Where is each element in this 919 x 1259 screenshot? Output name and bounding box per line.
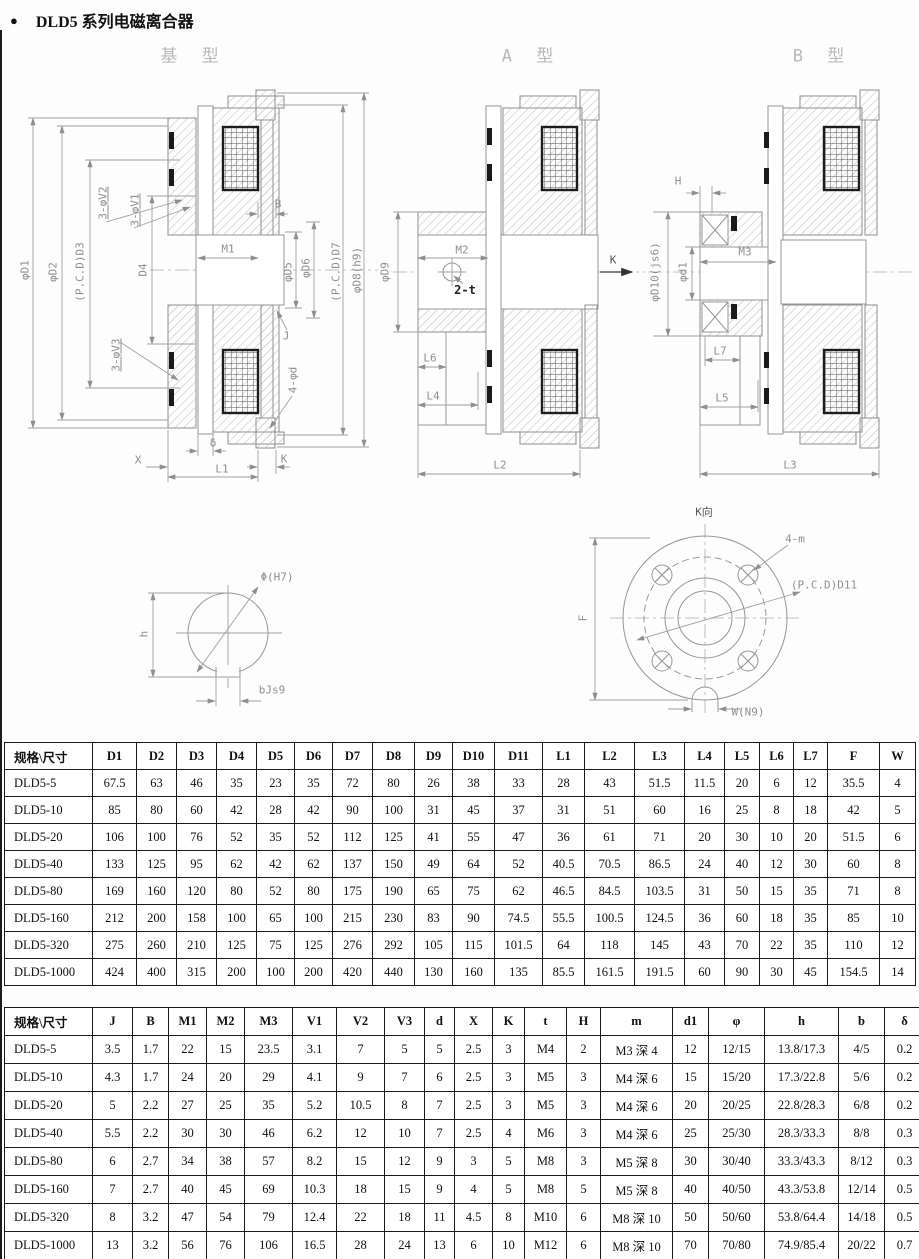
table-cell: 31 — [543, 797, 585, 824]
table-cell: 41 — [415, 824, 453, 851]
table-cell: 35 — [794, 905, 828, 932]
row-label: DLD5-160 — [5, 905, 93, 932]
table-cell: 35 — [217, 770, 257, 797]
table-cell: 42 — [828, 797, 880, 824]
table-cell: 12/15 — [709, 1036, 765, 1064]
dim-phi-d2-label: φD2 — [48, 262, 59, 282]
table-row: DLD5-16072.740456910.31815945M85M5 深 840… — [5, 1176, 919, 1204]
column-header: K — [493, 1008, 525, 1036]
dim-phi-d9-label: φD9 — [380, 262, 391, 282]
table-cell: 70 — [725, 932, 760, 959]
table-cell: 110 — [828, 932, 880, 959]
table-cell: 35 — [245, 1092, 293, 1120]
table-cell: 4.3 — [93, 1064, 133, 1092]
table-cell: 65 — [415, 878, 453, 905]
dim-4-phi-d-label: 4-φd — [288, 367, 299, 394]
table-cell: 16.5 — [293, 1232, 337, 1259]
table-cell: 5 — [93, 1092, 133, 1120]
table-cell: 101.5 — [495, 932, 543, 959]
table-cell: 25 — [725, 797, 760, 824]
table-row: DLD5-32027526021012575125276292105115101… — [5, 932, 916, 959]
table-cell: 30 — [673, 1148, 709, 1176]
dim-2-t-label: 2-t — [454, 284, 476, 296]
table-cell: 42 — [257, 851, 295, 878]
table-cell: 40 — [673, 1176, 709, 1204]
dim-f-label: F — [578, 615, 589, 622]
table-cell: 18 — [760, 905, 794, 932]
table-cell: 5 — [493, 1176, 525, 1204]
column-header: M3 — [245, 1008, 293, 1036]
table-cell: 60 — [725, 905, 760, 932]
table-cell: 2.2 — [133, 1092, 169, 1120]
table-cell: 15/20 — [709, 1064, 765, 1092]
dimensions-table-1: 规格\尺寸D1D2D3D4D5D6D7D8D9D10D11L1L2L3L4L5L… — [4, 742, 916, 986]
table-cell: 54 — [207, 1204, 245, 1232]
table-cell: 1.7 — [133, 1064, 169, 1092]
column-header: M1 — [169, 1008, 207, 1036]
table-cell: M8 — [525, 1176, 567, 1204]
table-cell: 9 — [425, 1176, 455, 1204]
table-cell: 175 — [333, 878, 373, 905]
table-cell: 200 — [137, 905, 177, 932]
table-cell: 22 — [337, 1204, 385, 1232]
table-cell: 55.5 — [543, 905, 585, 932]
dim-phi-d1-label: φD1 — [20, 260, 31, 280]
dim-h-bore-label: h — [139, 631, 150, 638]
table-cell: 36 — [543, 824, 585, 851]
table-cell: 112 — [333, 824, 373, 851]
table-cell: 10 — [760, 824, 794, 851]
table-cell: 28 — [543, 770, 585, 797]
table-cell: 190 — [373, 878, 415, 905]
table-cell: 35 — [794, 932, 828, 959]
table-cell: 24 — [685, 851, 725, 878]
table-cell: M5 — [525, 1064, 567, 1092]
column-header: D6 — [295, 743, 333, 770]
dim-phi-d6-label: φD6 — [301, 258, 312, 278]
row-label: DLD5-5 — [5, 770, 93, 797]
table-cell: 62 — [295, 851, 333, 878]
table-cell: 62 — [495, 878, 543, 905]
column-header: φ — [709, 1008, 765, 1036]
row-label: DLD5-1000 — [5, 959, 93, 986]
table-cell: 103.5 — [635, 878, 685, 905]
table-cell: 6 — [425, 1064, 455, 1092]
table-cell: 4/5 — [839, 1036, 885, 1064]
table-cell: 33.3/43.3 — [765, 1148, 839, 1176]
table-cell: 80 — [137, 797, 177, 824]
table-cell: 200 — [295, 959, 333, 986]
column-header: L3 — [635, 743, 685, 770]
column-header: L2 — [585, 743, 635, 770]
dim-w-n9-label: W(N9) — [731, 707, 764, 718]
column-header: D9 — [415, 743, 453, 770]
table-cell: 2.5 — [455, 1036, 493, 1064]
table-cell: 115 — [453, 932, 495, 959]
column-header: J — [93, 1008, 133, 1036]
header-row: 规格\尺寸JBM1M2M3V1V2V3dXKtHmd1φhbδ — [5, 1008, 919, 1036]
row-label: DLD5-320 — [5, 1204, 93, 1232]
column-header: L7 — [794, 743, 828, 770]
table-cell: 30 — [207, 1120, 245, 1148]
table-cell: 2.5 — [455, 1092, 493, 1120]
table-cell: 71 — [635, 824, 685, 851]
row-label: DLD5-20 — [5, 824, 93, 851]
table-cell: 34 — [169, 1148, 207, 1176]
table-cell: 20/25 — [709, 1092, 765, 1120]
table-cell: 2.7 — [133, 1176, 169, 1204]
table-cell: 42 — [217, 797, 257, 824]
column-header: V2 — [337, 1008, 385, 1036]
table-cell: 72 — [333, 770, 373, 797]
column-header: D11 — [495, 743, 543, 770]
column-header: M2 — [207, 1008, 245, 1036]
dim-b-label: B — [275, 199, 282, 210]
table-cell: 28.3/33.3 — [765, 1120, 839, 1148]
table-cell: 169 — [93, 878, 137, 905]
table-cell: 40.5 — [543, 851, 585, 878]
table-cell: 90 — [333, 797, 373, 824]
dim-pcd-d11-label: (P.C.D)D11 — [791, 580, 857, 591]
table-cell: 20/22 — [839, 1232, 885, 1259]
table-cell: 11.5 — [685, 770, 725, 797]
table-cell: 6 — [880, 824, 916, 851]
b-type-title-label: B 型 — [793, 49, 851, 66]
dim-h-gap-label: H — [675, 176, 682, 187]
column-header: D3 — [177, 743, 217, 770]
table-cell: 15 — [760, 878, 794, 905]
table-cell: 424 — [93, 959, 137, 986]
column-header: d — [425, 1008, 455, 1036]
table-cell: 22 — [760, 932, 794, 959]
table-cell: 7 — [385, 1064, 425, 1092]
table-cell: 25 — [207, 1092, 245, 1120]
column-header: D5 — [257, 743, 295, 770]
table-cell: 15 — [207, 1036, 245, 1064]
table-cell: 43 — [685, 932, 725, 959]
table-cell: 210 — [177, 932, 217, 959]
table-cell: 29 — [245, 1064, 293, 1092]
table-cell: 10 — [493, 1232, 525, 1259]
dim-3-phi-v3-label: 3-φV3 — [111, 338, 122, 371]
table-cell: 17.3/22.8 — [765, 1064, 839, 1092]
table-cell: 6/8 — [839, 1092, 885, 1120]
table-cell: 83 — [415, 905, 453, 932]
table-cell: 100 — [217, 905, 257, 932]
row-label: DLD5-40 — [5, 1120, 93, 1148]
table-cell: 47 — [169, 1204, 207, 1232]
table-cell: 23.5 — [245, 1036, 293, 1064]
table-cell: 158 — [177, 905, 217, 932]
dim-l5-label: L5 — [715, 393, 728, 404]
table-cell: 15 — [673, 1064, 709, 1092]
dim-phi-d1-small-label: φd1 — [678, 262, 689, 282]
table-cell: 70/80 — [709, 1232, 765, 1259]
table-cell: 50 — [725, 878, 760, 905]
table-cell: 62 — [217, 851, 257, 878]
dim-phi-d10-label: φD10(js6) — [650, 242, 661, 302]
table-cell: M4 — [525, 1036, 567, 1064]
table-cell: 5 — [880, 797, 916, 824]
column-header: F — [828, 743, 880, 770]
table-cell: 215 — [333, 905, 373, 932]
table-cell: 12 — [337, 1120, 385, 1148]
table-cell: 20 — [207, 1064, 245, 1092]
table-cell: 40 — [169, 1176, 207, 1204]
table-cell: 3 — [567, 1120, 601, 1148]
table-cell: 46 — [177, 770, 217, 797]
table-cell: 9 — [337, 1064, 385, 1092]
dimensions-table-2: 规格\尺寸JBM1M2M3V1V2V3dXKtHmd1φhbδDLD5-53.5… — [4, 1007, 919, 1259]
table-cell: 6.2 — [293, 1120, 337, 1148]
table-cell: 3 — [493, 1092, 525, 1120]
table-cell: 26 — [415, 770, 453, 797]
table-cell: 3 — [567, 1148, 601, 1176]
column-header: D7 — [333, 743, 373, 770]
table-cell: 95 — [177, 851, 217, 878]
table-cell: 43 — [585, 770, 635, 797]
table-row: DLD5-53.51.7221523.53.17552.53M42M3 深 41… — [5, 1036, 919, 1064]
table-cell: 0.5 — [885, 1204, 919, 1232]
table-cell: 35 — [794, 878, 828, 905]
table-cell: 3.5 — [93, 1036, 133, 1064]
table-cell: 12 — [760, 851, 794, 878]
table-cell: 51 — [585, 797, 635, 824]
column-header: b — [839, 1008, 885, 1036]
table-row: DLD5-16021220015810065100215230839074.55… — [5, 905, 916, 932]
table-cell: 2.5 — [455, 1064, 493, 1092]
table-row: DLD5-8062.73438578.21512935M83M5 深 83030… — [5, 1148, 919, 1176]
table-cell: 7 — [337, 1036, 385, 1064]
table-cell: 69 — [245, 1176, 293, 1204]
table-cell: 4 — [455, 1176, 493, 1204]
table-cell: 8/12 — [839, 1148, 885, 1176]
row-label: DLD5-10 — [5, 797, 93, 824]
table-cell: 75 — [453, 878, 495, 905]
table-cell: 46.5 — [543, 878, 585, 905]
table-cell: 18 — [385, 1204, 425, 1232]
table-cell: 3.2 — [133, 1204, 169, 1232]
table-cell: 6 — [567, 1232, 601, 1259]
table-cell: 64 — [453, 851, 495, 878]
column-header: D10 — [453, 743, 495, 770]
table-cell: 9 — [425, 1148, 455, 1176]
table-cell: 5/6 — [839, 1064, 885, 1092]
dim-l4-label: L4 — [426, 391, 439, 402]
table-cell: 20 — [725, 770, 760, 797]
table-cell: 4 — [880, 770, 916, 797]
table-row: DLD5-2052.22725355.210.5872.53M53M4 深 62… — [5, 1092, 919, 1120]
table-cell: M5 深 8 — [601, 1148, 673, 1176]
table-cell: 24 — [169, 1064, 207, 1092]
table-cell: 12/14 — [839, 1176, 885, 1204]
table-cell: 13 — [425, 1232, 455, 1259]
table-cell: M8 深 10 — [601, 1204, 673, 1232]
header-row: 规格\尺寸D1D2D3D4D5D6D7D8D9D10D11L1L2L3L4L5L… — [5, 743, 916, 770]
table-cell: 440 — [373, 959, 415, 986]
table-cell: M3 深 4 — [601, 1036, 673, 1064]
table-cell: 7 — [93, 1176, 133, 1204]
k-view-title-label: K向 — [695, 507, 713, 518]
table-cell: 85 — [828, 905, 880, 932]
table-cell: 3 — [493, 1036, 525, 1064]
table-cell: 14 — [880, 959, 916, 986]
table-cell: 106 — [93, 824, 137, 851]
column-header: D4 — [217, 743, 257, 770]
table-cell: 14/18 — [839, 1204, 885, 1232]
table-cell: 6 — [567, 1204, 601, 1232]
dim-d4-label: D4 — [138, 263, 149, 276]
table-cell: 52 — [257, 878, 295, 905]
table-cell: 5 — [567, 1176, 601, 1204]
table-cell: 4.1 — [293, 1064, 337, 1092]
column-header: 规格\尺寸 — [5, 743, 93, 770]
dim-l3-label: L3 — [783, 460, 796, 471]
table-cell: 20 — [794, 824, 828, 851]
table-cell: 42 — [295, 797, 333, 824]
table-cell: M6 — [525, 1120, 567, 1148]
datasheet-page: ● DLD5 系列电磁离合器 — [0, 0, 919, 1259]
column-header: V3 — [385, 1008, 425, 1036]
column-header: V1 — [293, 1008, 337, 1036]
table-cell: 12.4 — [293, 1204, 337, 1232]
table-cell: 212 — [93, 905, 137, 932]
column-header: B — [133, 1008, 169, 1036]
table-cell: 45 — [794, 959, 828, 986]
table-cell: 20 — [673, 1092, 709, 1120]
dim-pcd-d3-label: (P.C.D)D3 — [75, 242, 86, 302]
dim-phi-d5-label: φD5 — [283, 262, 294, 282]
table-cell: 420 — [333, 959, 373, 986]
column-header: L1 — [543, 743, 585, 770]
table-cell: 51.5 — [635, 770, 685, 797]
table-cell: 0.2 — [885, 1092, 919, 1120]
row-label: DLD5-5 — [5, 1036, 93, 1064]
table-cell: 40/50 — [709, 1176, 765, 1204]
table-cell: 46 — [245, 1120, 293, 1148]
column-header: m — [601, 1008, 673, 1036]
table-cell: 27 — [169, 1092, 207, 1120]
table-cell: 5.2 — [293, 1092, 337, 1120]
table-cell: 80 — [295, 878, 333, 905]
table-cell: 100 — [295, 905, 333, 932]
table-cell: 2.7 — [133, 1148, 169, 1176]
table-cell: 125 — [295, 932, 333, 959]
table-row: DLD5-20106100765235521121254155473661712… — [5, 824, 916, 851]
table-cell: 260 — [137, 932, 177, 959]
table-cell: 8 — [493, 1204, 525, 1232]
table-cell: 100 — [137, 824, 177, 851]
table-cell: 76 — [177, 824, 217, 851]
table-cell: 292 — [373, 932, 415, 959]
column-header: H — [567, 1008, 601, 1036]
table-cell: 52 — [495, 851, 543, 878]
table-row: DLD5-10858060422842901003145373151601625… — [5, 797, 916, 824]
table-cell: 125 — [373, 824, 415, 851]
column-header: D8 — [373, 743, 415, 770]
table-cell: 105 — [415, 932, 453, 959]
table-cell: 130 — [415, 959, 453, 986]
table-cell: 6 — [93, 1148, 133, 1176]
table-cell: 0.2 — [885, 1064, 919, 1092]
table-cell: 90 — [453, 905, 495, 932]
row-label: DLD5-160 — [5, 1176, 93, 1204]
column-header: δ — [885, 1008, 919, 1036]
dim-k1-label: K — [281, 454, 288, 465]
table-cell: M4 深 6 — [601, 1092, 673, 1120]
table-cell: 30 — [725, 824, 760, 851]
table-cell: 38 — [207, 1148, 245, 1176]
table-cell: 400 — [137, 959, 177, 986]
dim-delta-label: δ — [210, 438, 217, 449]
table-cell: 56 — [169, 1232, 207, 1259]
table-cell: 79 — [245, 1204, 293, 1232]
table-cell: 0.5 — [885, 1176, 919, 1204]
table-cell: 3.1 — [293, 1036, 337, 1064]
dim-pcd-d7-label: (P.C.D)D7 — [331, 242, 342, 302]
table-cell: 35 — [295, 770, 333, 797]
column-header: L5 — [725, 743, 760, 770]
table-cell: 10 — [880, 905, 916, 932]
table-cell: 76 — [207, 1232, 245, 1259]
table-cell: 30 — [169, 1120, 207, 1148]
table-cell: 90 — [725, 959, 760, 986]
table-cell: 70 — [673, 1232, 709, 1259]
table-cell: 154.5 — [828, 959, 880, 986]
table-cell: 60 — [828, 851, 880, 878]
dim-3-phi-v2-label: 3-φV2 — [98, 186, 109, 219]
table-cell: 10 — [385, 1120, 425, 1148]
table-row: DLD5-567.563463523357280263833284351.511… — [5, 770, 916, 797]
table-cell: 1.7 — [133, 1036, 169, 1064]
table-cell: 50/60 — [709, 1204, 765, 1232]
dim-x-label: X — [135, 455, 142, 466]
base-type-title-label: 基 型 — [160, 49, 225, 66]
table-row: DLD5-401331259562426213715049645240.570.… — [5, 851, 916, 878]
table-row: DLD5-104.31.72420294.19762.53M53M4 深 615… — [5, 1064, 919, 1092]
table-cell: 6 — [455, 1232, 493, 1259]
table-cell: 3 — [493, 1064, 525, 1092]
table-cell: 3 — [567, 1064, 601, 1092]
table-cell: 13 — [93, 1232, 133, 1259]
table-cell: 30/40 — [709, 1148, 765, 1176]
table-row: DLD5-10004244003152001002004204401301601… — [5, 959, 916, 986]
table-cell: 36 — [685, 905, 725, 932]
table-cell: 191.5 — [635, 959, 685, 986]
table-cell: M5 — [525, 1092, 567, 1120]
table-cell: 45 — [207, 1176, 245, 1204]
table-cell: 80 — [217, 878, 257, 905]
table-cell: 18 — [794, 797, 828, 824]
table-cell: 20 — [685, 824, 725, 851]
table-cell: 31 — [685, 878, 725, 905]
table-cell: 0.2 — [885, 1036, 919, 1064]
table-cell: 30 — [794, 851, 828, 878]
table-cell: 25/30 — [709, 1120, 765, 1148]
table-cell: 100.5 — [585, 905, 635, 932]
table-cell: 13.8/17.3 — [765, 1036, 839, 1064]
table-cell: 125 — [137, 851, 177, 878]
table-cell: 18 — [337, 1176, 385, 1204]
table-cell: M10 — [525, 1204, 567, 1232]
dim-l6-label: L6 — [423, 353, 436, 364]
column-header: L4 — [685, 743, 725, 770]
table-cell: 100 — [257, 959, 295, 986]
table-cell: 7 — [425, 1120, 455, 1148]
table-cell: 37 — [495, 797, 543, 824]
table-cell: 8 — [760, 797, 794, 824]
table-cell: 35.5 — [828, 770, 880, 797]
